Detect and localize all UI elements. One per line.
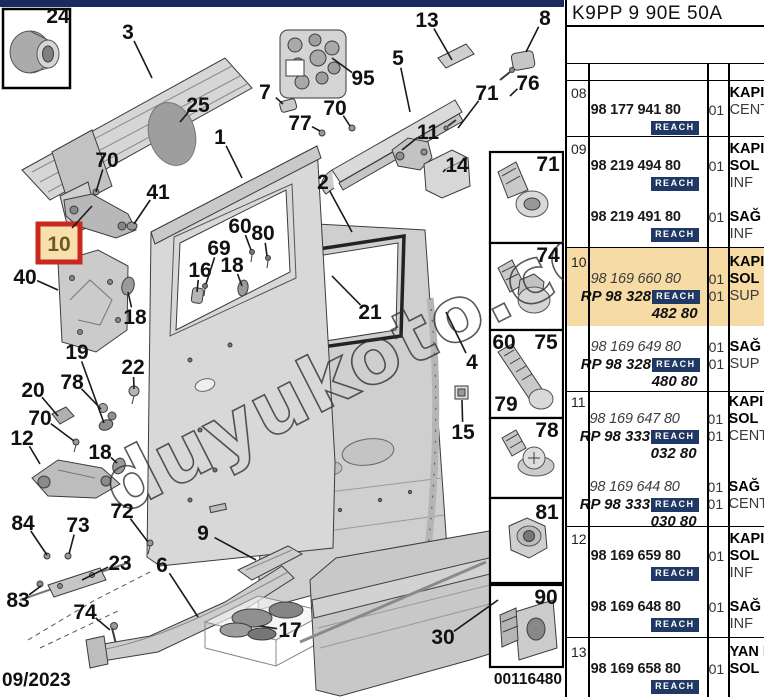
row-number: 13 — [567, 644, 587, 697]
reach-badge[interactable]: REACH — [651, 680, 699, 694]
description: KAPI — [726, 394, 764, 411]
callout-9[interactable]: 9 — [197, 522, 209, 545]
description: CENT — [726, 496, 764, 513]
parts-table-panel: K9PP 9 90E 50A 08KAPI98 177 941 8001CENT… — [565, 0, 764, 697]
column-divider — [588, 64, 590, 697]
callout-15[interactable]: 15 — [451, 421, 475, 444]
row-number: 09 — [567, 141, 587, 247]
callout-23[interactable]: 23 — [108, 552, 131, 575]
callout-17[interactable]: 17 — [278, 619, 301, 642]
exploded-diagram: duyukoto.com 395138571762577770111412417… — [0, 0, 564, 697]
callout-3[interactable]: 3 — [122, 21, 134, 44]
lower-left-bracket-cluster[interactable] — [20, 540, 153, 649]
description: CENT — [726, 428, 764, 445]
description: INF — [727, 565, 764, 582]
badge-line: REACH — [587, 616, 706, 633]
quantity: 01 — [706, 356, 727, 373]
rp-number: RP 98 328 — [581, 288, 651, 305]
callout-30[interactable]: 30 — [431, 626, 454, 649]
description: INF — [727, 616, 764, 633]
rp-number: RP 98 333 — [580, 428, 650, 445]
reach-badge[interactable]: REACH — [651, 430, 699, 444]
rp-line: RP 98 328REACH — [587, 288, 706, 305]
callout-70[interactable]: 70 — [95, 149, 118, 172]
description: INF — [727, 226, 764, 243]
description: SAĞ — [727, 599, 764, 616]
reach-badge[interactable]: REACH — [651, 618, 699, 632]
parts-catalog-page: duyukoto.com 395138571762577770111412417… — [0, 0, 764, 697]
row-lines: KAPI98 219 494 8001SOLREACHINF98 219 491… — [587, 141, 764, 247]
table-row[interactable]: 09KAPI98 219 494 8001SOLREACHINF98 219 4… — [567, 137, 764, 248]
reach-badge[interactable]: REACH — [651, 121, 699, 135]
callout-2[interactable]: 2 — [317, 171, 329, 194]
badge-line: REACH — [587, 565, 706, 582]
rp-number: RP 98 333 — [580, 496, 650, 513]
roller-bracket-95[interactable] — [280, 30, 346, 98]
rp-line: RP 98 333REACH — [586, 496, 705, 513]
quantity: 01 — [706, 599, 727, 616]
description: SUP — [727, 288, 764, 305]
column-divider — [728, 64, 730, 697]
description: SOL — [727, 271, 764, 288]
callout-1[interactable]: 1 — [214, 126, 226, 149]
callout-8[interactable]: 8 — [539, 7, 551, 30]
rp-number-suffix: 482 80 — [587, 305, 706, 322]
badge-line: REACH — [587, 678, 706, 695]
callout-leader-15 — [462, 400, 463, 422]
callout-18[interactable]: 18 — [88, 441, 112, 464]
table-row[interactable]: 13YAN K98 169 658 8001SOLREACH — [567, 638, 764, 697]
description: KAPI — [727, 85, 764, 102]
quantity: 01 — [706, 271, 727, 288]
badge-line: REACH — [587, 226, 706, 243]
callout-90[interactable]: 90 — [534, 586, 557, 609]
callout-95[interactable]: 95 — [351, 67, 375, 90]
row-number: 12 — [567, 531, 587, 637]
reach-badge[interactable]: REACH — [651, 228, 699, 242]
callout-83[interactable]: 83 — [6, 589, 29, 612]
callout-18[interactable]: 18 — [123, 306, 147, 329]
callout-25[interactable]: 25 — [186, 94, 210, 117]
description: SAĞ — [726, 479, 764, 496]
callout-leader-40 — [37, 281, 58, 290]
svg-text:10: 10 — [47, 233, 70, 256]
table-row[interactable]: 11KAPI98 169 647 8001SOLRP 98 333REACH01… — [567, 392, 764, 527]
badge-line: REACH — [587, 119, 706, 136]
callout-22[interactable]: 22 — [121, 356, 144, 379]
callout-69[interactable]: 69 — [207, 237, 230, 260]
parts-table-rows: 08KAPI98 177 941 8001CENTREACH09KAPI98 2… — [567, 81, 764, 697]
row-lines: KAPI98 169 660 8001SOLRP 98 328REACH01SU… — [587, 254, 764, 391]
rp-number-suffix: 480 80 — [587, 373, 706, 390]
quantity: 01 — [706, 209, 727, 226]
callout-60[interactable]: 60 — [492, 331, 515, 354]
rp-number-suffix: 032 80 — [586, 445, 705, 462]
rp-number: RP 98 328 — [581, 356, 651, 373]
part-number: 98 169 660 80 — [587, 271, 706, 288]
description: KAPI — [727, 531, 764, 548]
part-number: 98 169 659 80 — [587, 548, 706, 565]
rp-line: RP 98 328REACH — [587, 356, 706, 373]
reach-badge[interactable]: REACH — [652, 358, 700, 372]
callout-20[interactable]: 20 — [21, 379, 44, 402]
reach-badge[interactable]: REACH — [652, 290, 700, 304]
callout-14[interactable]: 14 — [445, 154, 469, 177]
quantity: 01 — [706, 661, 727, 678]
callout-leader-1 — [226, 146, 242, 178]
quantity: 01 — [706, 288, 727, 305]
callout-71[interactable]: 71 — [475, 82, 499, 105]
table-row[interactable]: 08KAPI98 177 941 8001CENTREACH — [567, 81, 764, 137]
inner-door-panel-40[interactable] — [58, 250, 128, 352]
description: SAĞ — [727, 339, 764, 356]
callout-leader-3 — [134, 41, 152, 78]
column-divider — [707, 64, 709, 697]
callout-leader-77 — [312, 127, 320, 131]
callout-71[interactable]: 71 — [536, 153, 560, 176]
callout-leader-6 — [169, 573, 198, 617]
part-number: 98 219 494 80 — [587, 158, 706, 175]
callout-24[interactable]: 24 — [46, 5, 70, 28]
description: SUP — [727, 356, 764, 373]
part-number: 98 169 649 80 — [587, 339, 706, 356]
callout-leader-74 — [96, 618, 110, 630]
callout-76[interactable]: 76 — [516, 72, 539, 95]
callout-74[interactable]: 74 — [536, 244, 560, 267]
doc-number: 00116480 — [494, 671, 562, 688]
callout-leader-8 — [526, 27, 539, 52]
part-number: 98 169 647 80 — [586, 411, 705, 428]
rp-number-suffix: 030 80 — [586, 513, 705, 530]
callout-80[interactable]: 80 — [251, 222, 274, 245]
callout-73[interactable]: 73 — [66, 514, 89, 537]
callout-12[interactable]: 12 — [10, 427, 33, 450]
callout-78[interactable]: 78 — [535, 419, 559, 442]
description: SOL — [727, 158, 764, 175]
table-header-gap — [567, 27, 764, 64]
callout-41[interactable]: 41 — [146, 181, 170, 204]
date-label: 09/2023 — [2, 670, 71, 691]
callout-60[interactable]: 60 — [228, 215, 251, 238]
description: SAĞ — [727, 209, 764, 226]
quantity: 01 — [706, 339, 727, 356]
quantity: 01 — [706, 102, 727, 119]
description: KAPI — [727, 141, 764, 158]
part-number: 98 177 941 80 — [587, 102, 706, 119]
callout-leader-73 — [69, 535, 74, 554]
row-lines: KAPI98 177 941 8001CENTREACH — [587, 85, 764, 136]
part-number: 98 219 491 80 — [587, 209, 706, 226]
description: SOL — [726, 411, 764, 428]
callout-78[interactable]: 78 — [60, 371, 84, 394]
reach-badge[interactable]: REACH — [651, 567, 699, 581]
callout-13[interactable]: 13 — [415, 9, 438, 32]
callout-75[interactable]: 75 — [534, 331, 558, 354]
callout-84[interactable]: 84 — [11, 512, 35, 535]
table-column-header-row — [567, 64, 764, 81]
callout-70[interactable]: 70 — [323, 97, 346, 120]
description: SOL — [727, 661, 764, 678]
table-row[interactable]: 12KAPI98 169 659 8001SOLREACHINF98 169 6… — [567, 527, 764, 638]
callout-21[interactable]: 21 — [358, 301, 382, 324]
callout-leader-5 — [401, 68, 410, 112]
callout-leader-78 — [82, 389, 101, 409]
callout-19[interactable]: 19 — [65, 341, 88, 364]
callout-81[interactable]: 81 — [535, 501, 559, 524]
row-lines: KAPI98 169 647 8001SOLRP 98 333REACH01CE… — [586, 394, 764, 526]
catalog-code-title: K9PP 9 90E 50A — [567, 0, 764, 27]
callout-77[interactable]: 77 — [288, 112, 311, 135]
quantity: 01 — [706, 158, 727, 175]
part-number: 98 169 658 80 — [587, 661, 706, 678]
callout-40[interactable]: 40 — [13, 266, 36, 289]
callout-74[interactable]: 74 — [73, 601, 97, 624]
table-row[interactable]: 10KAPI98 169 660 8001SOLRP 98 328REACH01… — [567, 248, 764, 392]
row-lines: KAPI98 169 659 8001SOLREACHINF98 169 648… — [587, 531, 764, 637]
description: YAN K — [727, 644, 764, 661]
row-lines: YAN K98 169 658 8001SOLREACH — [587, 644, 764, 697]
callout-7[interactable]: 7 — [259, 81, 271, 104]
callout-4[interactable]: 4 — [466, 351, 478, 374]
part-number: 98 169 648 80 — [587, 599, 706, 616]
description: CENT — [727, 102, 764, 119]
rp-line: RP 98 333REACH — [586, 428, 705, 445]
reach-badge[interactable]: REACH — [651, 498, 699, 512]
quantity: 01 — [706, 548, 727, 565]
callout-79[interactable]: 79 — [494, 393, 517, 416]
row-number: 08 — [567, 85, 587, 136]
description: INF — [727, 175, 764, 192]
top-bar — [0, 0, 564, 7]
callout-leader-70 — [51, 424, 74, 441]
description: KAPI — [727, 254, 764, 271]
callout-72[interactable]: 72 — [110, 500, 133, 523]
part-number: 98 169 644 80 — [586, 479, 705, 496]
reach-badge[interactable]: REACH — [651, 177, 699, 191]
callout-5[interactable]: 5 — [392, 47, 404, 70]
callout-11[interactable]: 11 — [417, 121, 440, 144]
badge-line: REACH — [587, 175, 706, 192]
description: SOL — [727, 548, 764, 565]
callout-6[interactable]: 6 — [156, 554, 168, 577]
